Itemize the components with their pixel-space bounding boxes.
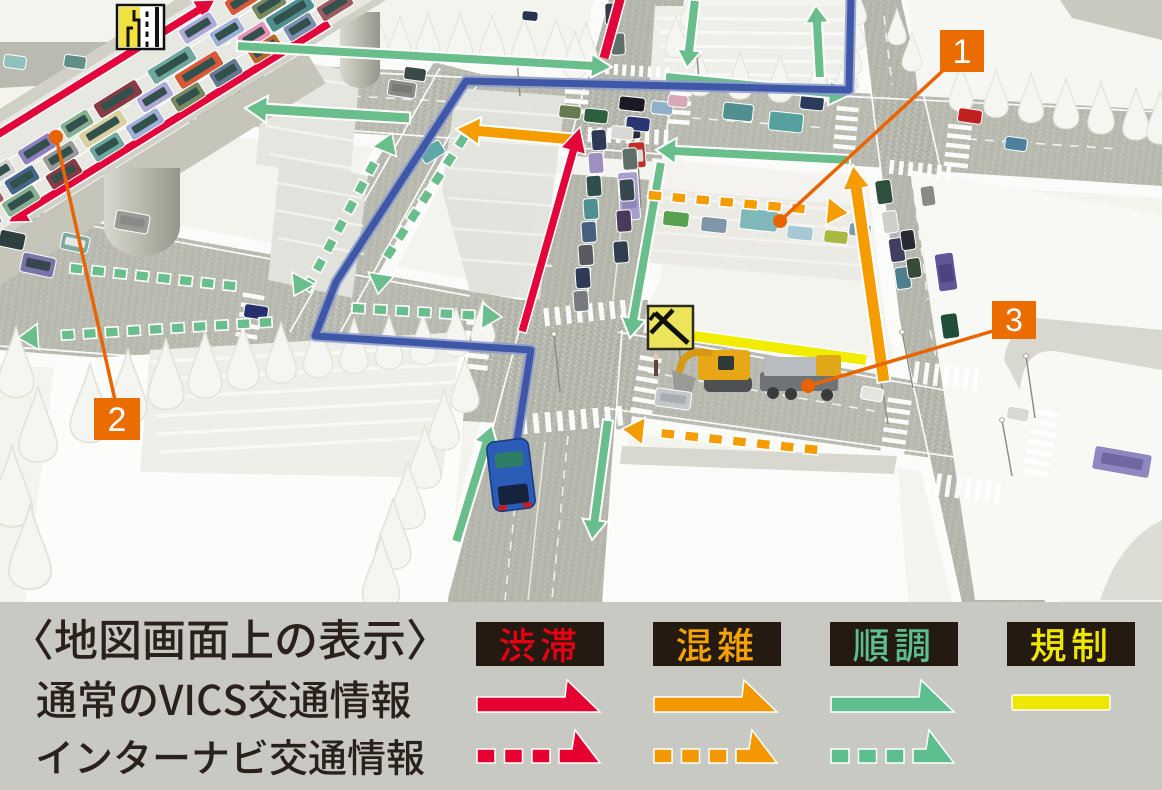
svg-text:1: 1 [953,33,972,71]
svg-text:2: 2 [108,401,127,439]
svg-text:3: 3 [1005,302,1023,338]
